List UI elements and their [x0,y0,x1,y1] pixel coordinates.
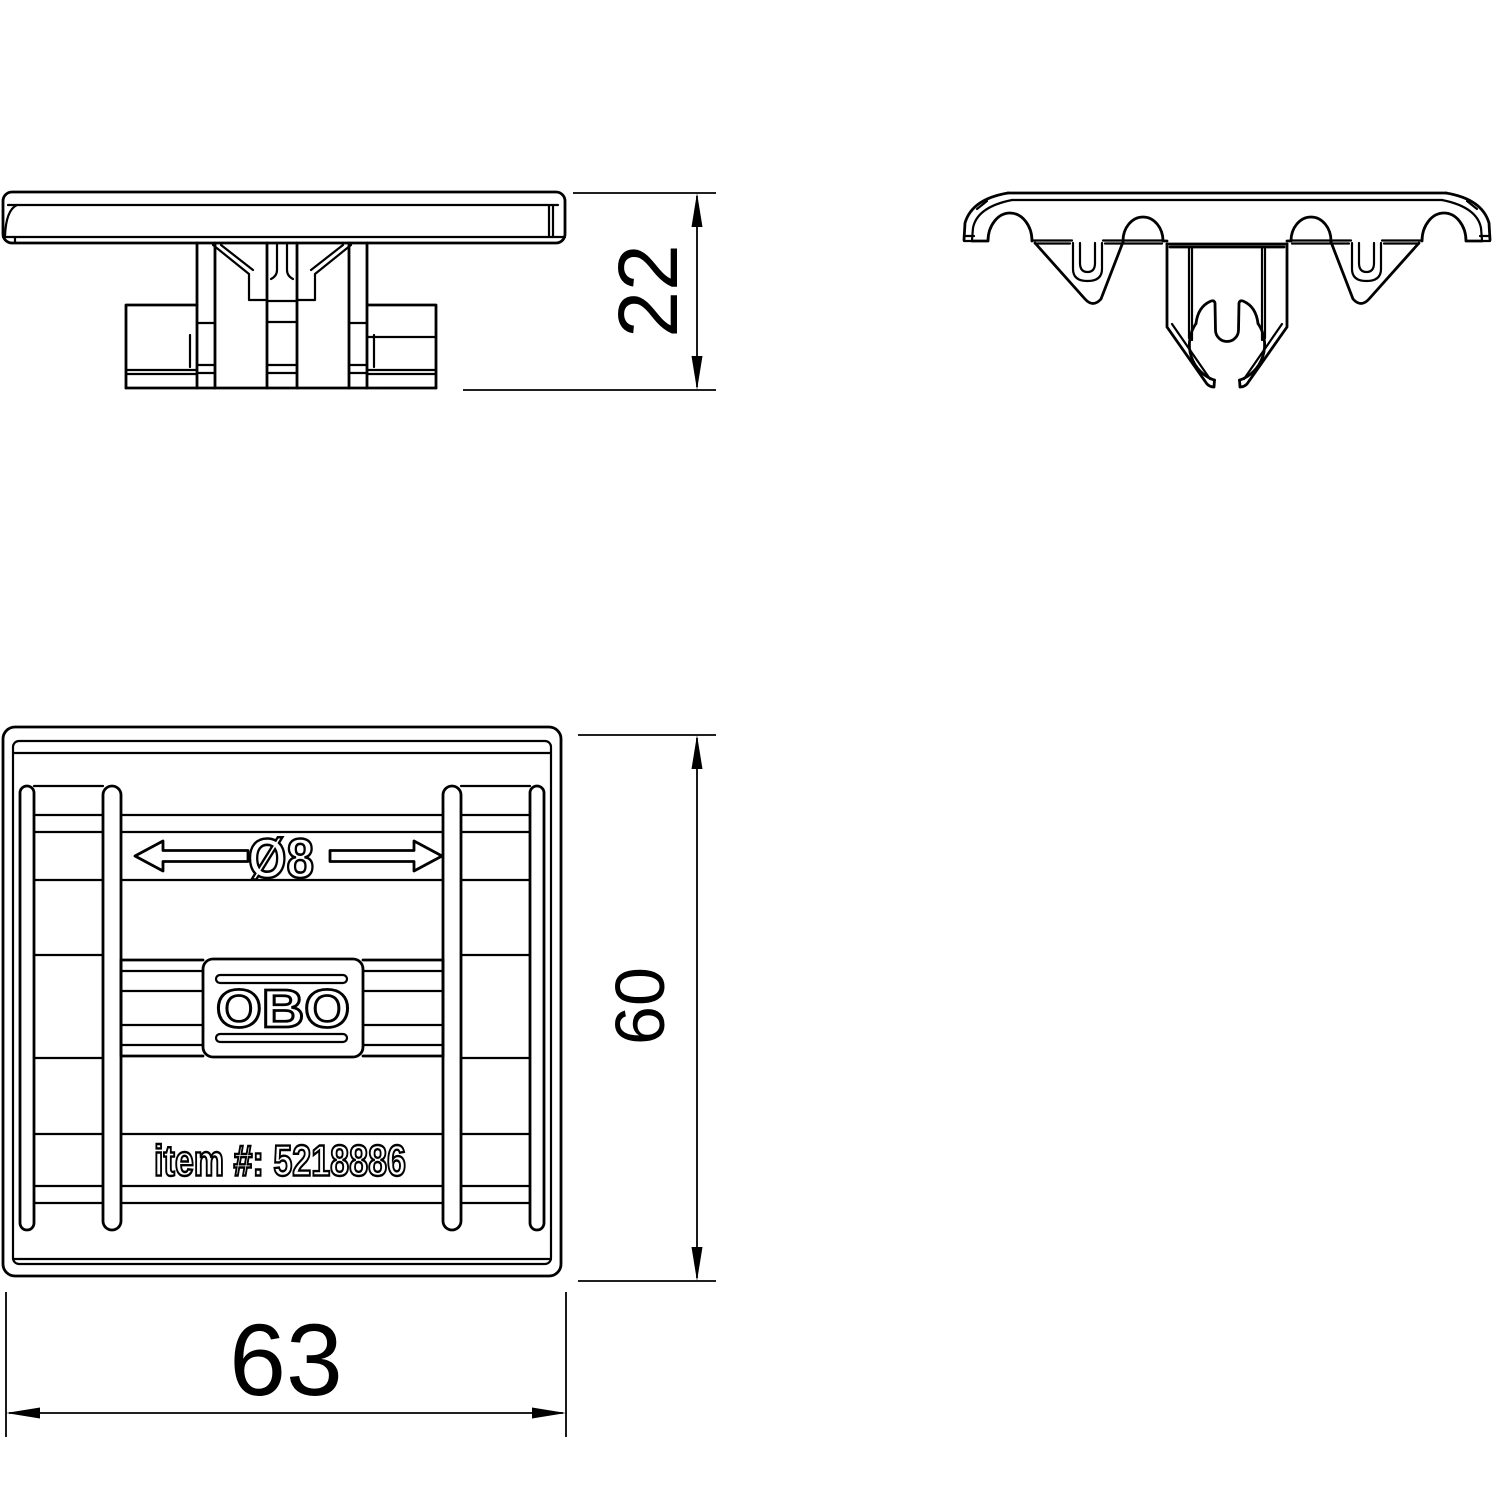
front-block-walls [1167,244,1287,387]
side-leg-columns [197,243,367,388]
side-cap-left-seam [5,205,17,236]
side-center-stem [267,243,297,388]
front-left-wave-small [972,213,1032,241]
side-blocks-detail [126,335,436,374]
plan-width-dimension: 63 [6,1292,566,1437]
front-view [964,193,1490,387]
dimension-value-22: 22 [601,244,695,337]
plan-rail-right [443,786,461,1230]
technical-drawing-canvas: 22 [0,0,1500,1500]
side-right-brace [297,245,351,300]
front-right-wave-large [1287,217,1331,241]
socket-circle-right-arc [1240,324,1265,381]
diameter-label: Ø8 [248,827,314,890]
front-right-clip [1352,243,1381,281]
side-view [3,192,565,388]
plan-rail-narrow-right [530,786,544,1230]
front-right-wave-small [1422,213,1482,241]
dimension-value-60: 60 [601,967,679,1045]
front-left-clip [1073,243,1102,281]
dimension-value-63: 63 [229,1303,342,1417]
obo-logo-text: OBO [216,979,350,1039]
front-block-top [1167,244,1287,247]
plan-rail-left [103,786,121,1230]
side-left-brace [213,245,267,300]
arrow-left-icon [135,841,248,871]
plan-rail-narrow-left [20,786,34,1230]
socket-jaw [1196,301,1258,342]
arrow-right-icon [330,841,442,871]
socket-circle-left-arc [1189,324,1214,381]
front-left-wave-large [1123,217,1167,241]
side-blocks-outline [126,305,436,388]
technical-drawing: 22 [0,0,1500,1500]
item-number-text: item #: 5218886 [154,1137,406,1186]
side-height-dimension: 22 [463,193,716,390]
side-center-slot [271,243,293,279]
side-cap-outline [3,192,565,243]
plan-height-dimension: 60 [578,735,716,1281]
side-stem-ticks [267,301,297,373]
